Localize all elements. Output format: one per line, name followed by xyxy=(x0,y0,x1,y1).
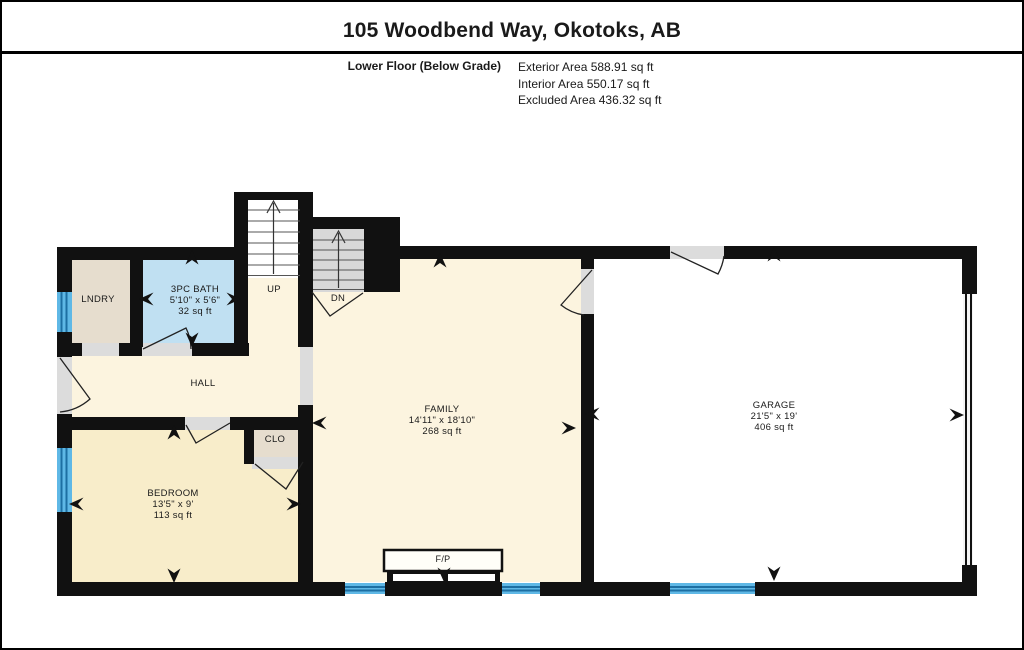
garage-window xyxy=(670,583,755,594)
family-window-right xyxy=(502,583,540,594)
floor-plan-page: 105 Woodbend Way, Okotoks, AB Lower Floo… xyxy=(0,0,1024,650)
closet-label: CLO xyxy=(265,434,285,445)
hall-family-passage xyxy=(300,347,313,405)
garage-man-doorway xyxy=(670,246,724,259)
laundry-doorway xyxy=(82,343,119,356)
garage-name: GARAGE xyxy=(751,400,798,411)
family-dims: 14'11" x 18'10" xyxy=(409,415,475,426)
laundry-window xyxy=(57,292,72,332)
fireplace-label: F/P xyxy=(436,554,451,565)
family-area: 268 sq ft xyxy=(409,426,475,437)
family-label: FAMILY 14'11" x 18'10" 268 sq ft xyxy=(409,404,475,437)
bedroom-area: 113 sq ft xyxy=(147,510,198,521)
garage-label: GARAGE 21'5" x 19' 406 sq ft xyxy=(751,400,798,433)
bath-label: 3PC BATH 5'10" x 5'6" 32 sq ft xyxy=(170,284,220,317)
hall-label: HALL xyxy=(191,378,216,389)
stairs-down-label: DN xyxy=(331,293,345,304)
bath-doorway xyxy=(142,343,192,356)
floor-plan-drawing xyxy=(2,2,1024,650)
bedroom-label: BEDROOM 13'5" x 9' 113 sq ft xyxy=(147,488,198,521)
exterior-door-opening xyxy=(57,357,72,414)
stairs-up-label: UP xyxy=(267,284,281,295)
garage-dims: 21'5" x 19' xyxy=(751,411,798,422)
bedroom-window xyxy=(57,448,72,512)
garage-overhead-door xyxy=(965,292,967,567)
bedroom-name: BEDROOM xyxy=(147,488,198,499)
bedroom-dims: 13'5" x 9' xyxy=(147,499,198,510)
laundry-label: LNDRY xyxy=(81,294,115,305)
bath-name: 3PC BATH xyxy=(170,284,220,295)
family-name: FAMILY xyxy=(409,404,475,415)
garage-area: 406 sq ft xyxy=(751,422,798,433)
bath-dims: 5'10" x 5'6" xyxy=(170,295,220,306)
family-window-left xyxy=(345,583,385,594)
bedroom-doorway xyxy=(185,417,230,430)
bath-area: 32 sq ft xyxy=(170,306,220,317)
